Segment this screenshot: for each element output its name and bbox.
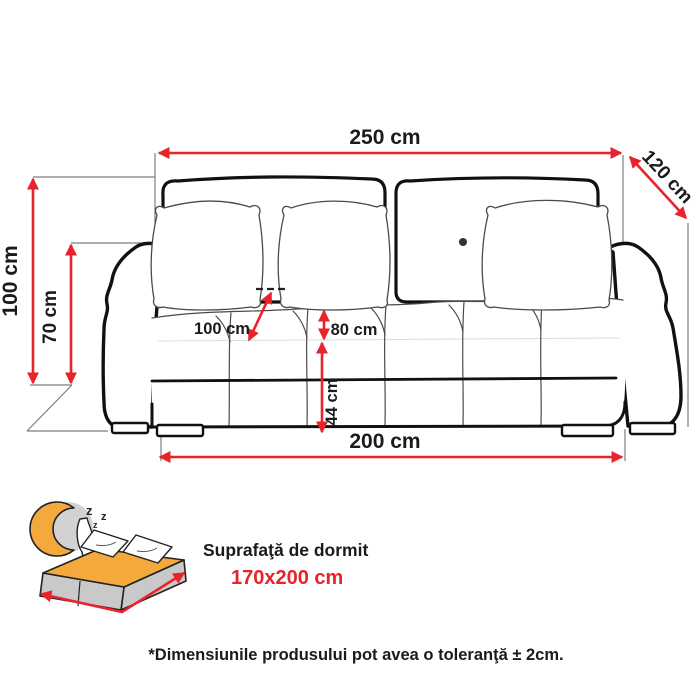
dimension-label-arm-height: 70 cm xyxy=(40,290,61,344)
dimension-label-seat-height: 44 cm xyxy=(323,379,341,426)
dimension-label-total-width: 250 cm xyxy=(349,126,420,149)
sleeping-area-size: 170x200 cm xyxy=(231,567,343,589)
pillow-right xyxy=(482,200,612,310)
dimension-label-base-width: 200 cm xyxy=(349,430,420,453)
sleeping-surface-icon: z z z xyxy=(30,502,186,612)
dimension-total-height: 100 cm xyxy=(0,179,33,383)
zzz-1: z xyxy=(86,503,93,518)
dimension-label-total-height: 100 cm xyxy=(0,245,22,316)
dimension-arm-height: 70 cm xyxy=(40,245,71,383)
seat-body xyxy=(152,298,625,427)
dimension-base-width: 200 cm xyxy=(160,430,622,457)
product-dimension-sheet: 250 cm 120 cm 100 cm 70 cm 100 cm 80 cm … xyxy=(0,0,700,700)
cushion-button xyxy=(459,238,467,246)
dimension-label-diagonal-inner: 100 cm xyxy=(194,320,250,338)
sofa-dimensions-diagram: 250 cm 120 cm 100 cm 70 cm 100 cm 80 cm … xyxy=(0,0,700,700)
zzz-2: z xyxy=(101,511,107,523)
sofa-illustration xyxy=(103,177,681,436)
dimension-label-seat-depth: 80 cm xyxy=(331,321,378,339)
footnote: *Dimensiunile produsului pot avea o tole… xyxy=(148,646,563,664)
dimension-depth: 120 cm xyxy=(630,147,697,218)
sleeping-area-label: Suprafaţă de dormit xyxy=(203,540,368,560)
pillow-left xyxy=(151,201,263,310)
dimension-total-width: 250 cm xyxy=(159,126,621,153)
zzz-3: z xyxy=(93,520,98,530)
pillow-middle xyxy=(278,201,390,310)
